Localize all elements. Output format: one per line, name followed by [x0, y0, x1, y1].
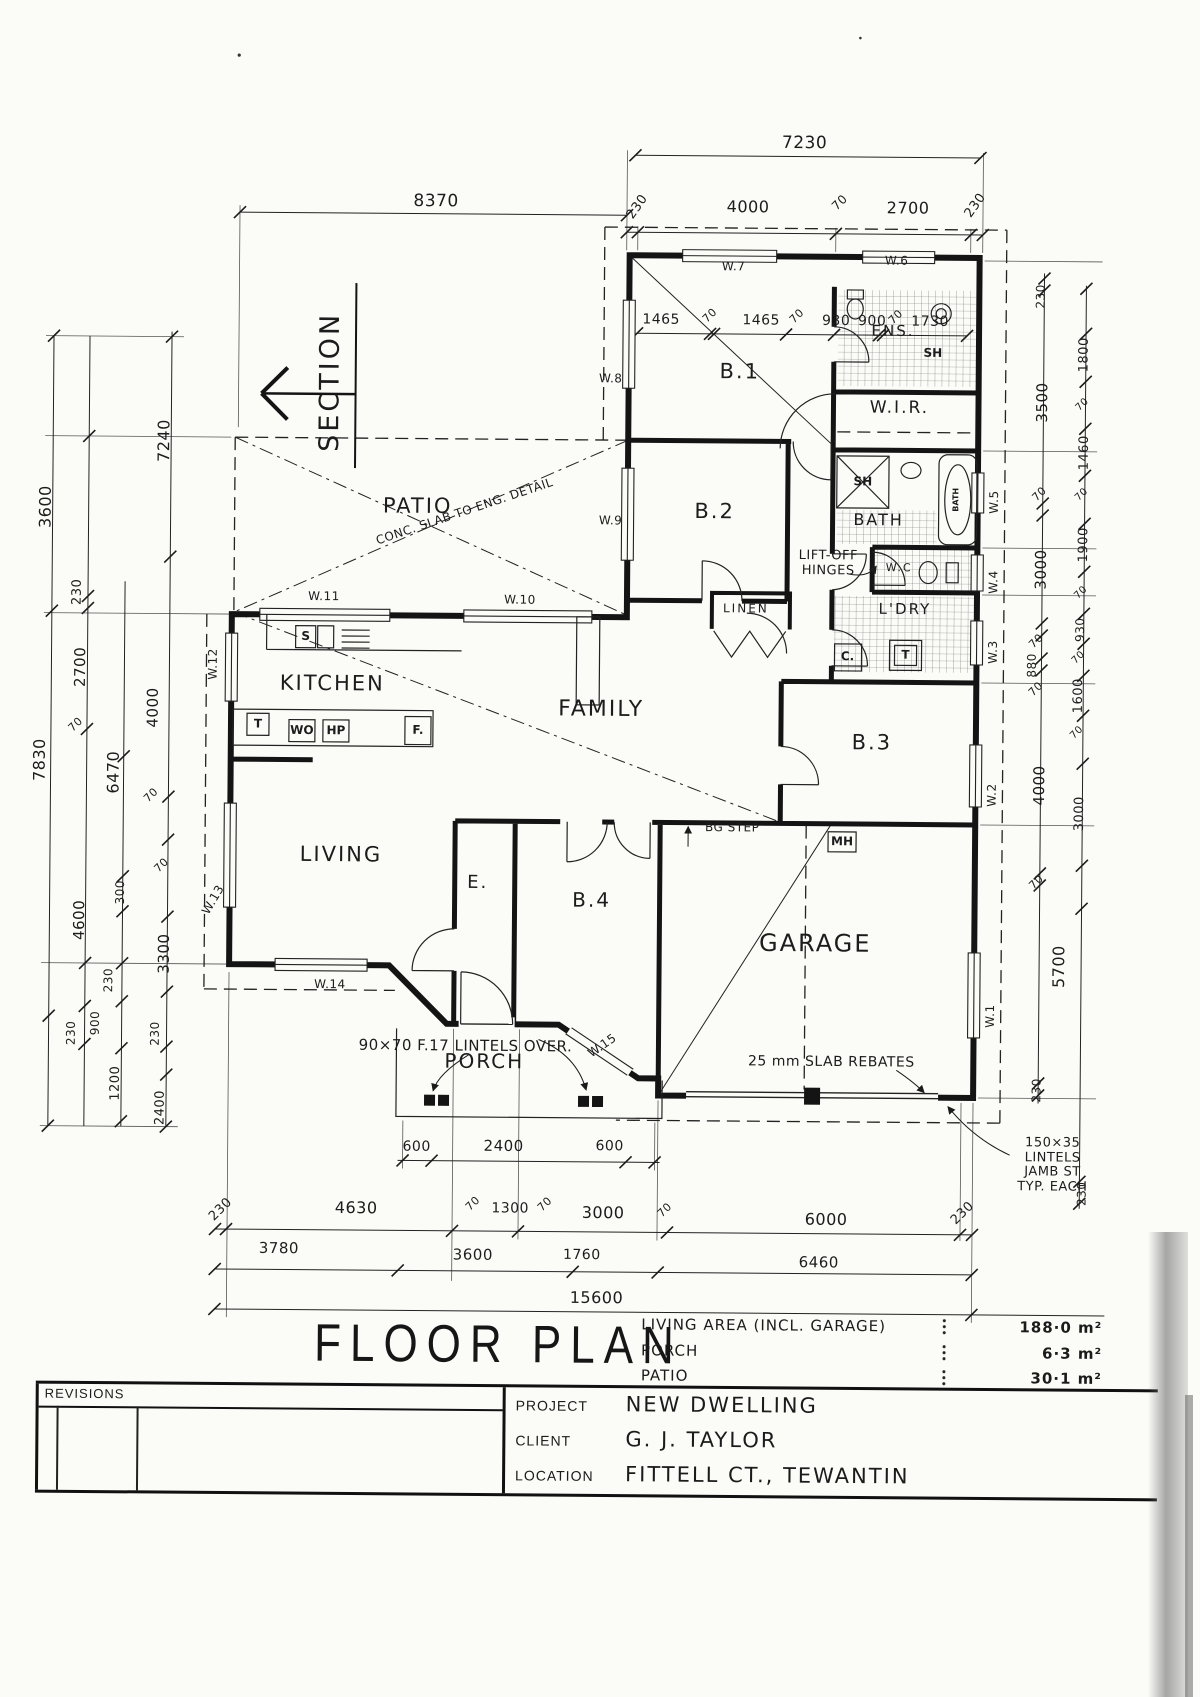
window-tag: W.11 — [308, 590, 340, 604]
fixture-label: S — [301, 630, 310, 644]
annotation-note: LIFT-OFF HINGES — [798, 549, 858, 579]
dimension-label: 1800 — [1077, 337, 1092, 372]
field-value: NEW DWELLING — [626, 1392, 818, 1418]
title-block-fields: PROJECTNEW DWELLINGCLIENTG. J. TAYLORLOC… — [505, 1387, 1158, 1498]
dimension-label: 1460 — [1078, 435, 1093, 470]
dimension-label: 70 — [142, 786, 161, 805]
dimension-label: 3000 — [1033, 549, 1050, 589]
dimension-label: 4630 — [335, 1199, 378, 1217]
window-tag: W.10 — [504, 594, 536, 608]
room-label: KITCHEN — [280, 672, 385, 696]
dimension-label: 600 — [402, 1140, 430, 1156]
dimension-label: 1730 — [911, 315, 949, 331]
dimension-label: 230 — [949, 1199, 978, 1228]
dimension-label: 2400 — [484, 1138, 524, 1155]
dotted-leader — [942, 1318, 946, 1336]
window-tag: W.4 — [987, 570, 1001, 594]
dimension-label: 900 — [858, 314, 886, 330]
dimension-label: 6470 — [104, 751, 122, 794]
dimension-label: 3500 — [1034, 382, 1051, 422]
dimension-label: 230 — [149, 1021, 163, 1046]
annotation-note: 25 mm SLAB REBATES — [748, 1054, 915, 1071]
dimension-label: 3000 — [1073, 796, 1088, 831]
dimension-label: 2700 — [72, 647, 89, 687]
scan-smudge — [1148, 1232, 1188, 1697]
dimension-label: 230 — [624, 192, 651, 222]
dimension-label: 5700 — [1050, 945, 1068, 988]
revisions-label: REVISIONS — [45, 1386, 125, 1402]
dimension-label: 70 — [1070, 649, 1088, 667]
room-label: B.4 — [572, 889, 611, 912]
dimension-label: 70 — [464, 1194, 483, 1213]
section-label: SECTION — [315, 312, 346, 452]
dimension-label: 70 — [1068, 724, 1086, 742]
window-tag: W.8 — [599, 372, 623, 386]
dimension-label: 70 — [788, 307, 807, 326]
dimension-label: 1300 — [491, 1201, 529, 1217]
dimension-label: 300 — [114, 880, 128, 905]
dimension-label: 4000 — [145, 687, 162, 727]
room-label: B.1 — [719, 360, 760, 384]
fixture-label: WO — [290, 724, 314, 738]
dimension-label: 1465 — [642, 312, 680, 328]
revisions-divider — [56, 1406, 59, 1490]
dimension-label: 6460 — [799, 1254, 839, 1271]
dimension-label: 230 — [71, 579, 86, 605]
room-label: LIVING — [300, 843, 383, 867]
area-row-label: LIVING AREA (INCL. GARAGE) — [641, 1315, 886, 1335]
window-tag: W.14 — [314, 978, 346, 992]
window-tag: W.1 — [984, 1004, 998, 1028]
dimension-label: 230 — [1030, 1078, 1044, 1103]
fixture-label: HP — [326, 724, 345, 738]
dimension-label: 1600 — [1072, 678, 1087, 713]
room-label: BATH — [853, 511, 904, 529]
field-label: CLIENT — [515, 1432, 571, 1448]
dimension-label: 70 — [656, 1201, 675, 1220]
dimension-label: 230 — [1076, 1182, 1090, 1207]
area-row-label: PORCH — [641, 1341, 698, 1359]
dimension-label: 230 — [963, 191, 990, 221]
field-label: PROJECT — [516, 1397, 588, 1414]
dimension-label: 1760 — [563, 1248, 601, 1264]
room-label: E. — [467, 873, 488, 893]
annotation-note: 90×70 F.17 LINTELS OVER. — [359, 1037, 573, 1055]
scan-smudge-edge — [1185, 1395, 1193, 1697]
fixture-label: F. — [412, 724, 423, 738]
dimension-label: 4600 — [71, 900, 88, 940]
fixture-label: SH — [854, 475, 873, 489]
dimension-label: 70 — [1027, 632, 1046, 651]
dimension-label: 70 — [66, 715, 85, 734]
window-tag: W.5 — [988, 490, 1002, 514]
room-label: W.C — [886, 562, 913, 575]
dimension-label: 7830 — [31, 738, 49, 781]
window-tag: W.13 — [200, 883, 228, 917]
room-label: B.3 — [852, 731, 893, 755]
room-label: GARAGE — [759, 930, 872, 958]
area-row-value: 188·0 m² — [1010, 1318, 1102, 1337]
dimension-label: 930 — [822, 314, 850, 330]
window-tag: W.2 — [986, 783, 1000, 807]
title-block-row: CLIENTG. J. TAYLOR — [505, 1424, 1157, 1463]
title-block-row: LOCATIONFITTELL CT., TEWANTIN — [505, 1459, 1157, 1498]
dotted-leader — [942, 1344, 946, 1362]
dimension-label: 70 — [1073, 486, 1091, 504]
revisions-rule — [39, 1406, 503, 1412]
revisions-divider — [136, 1406, 139, 1490]
dimension-label: 7230 — [782, 134, 827, 153]
dimension-label: 1900 — [1077, 527, 1092, 562]
dimension-label: 230 — [207, 1196, 236, 1225]
dimension-label: 70 — [830, 192, 851, 213]
dotted-leader — [942, 1369, 946, 1387]
dimension-label: 930 — [1074, 618, 1088, 643]
dimension-label: 70 — [152, 856, 171, 875]
dimension-label: 70 — [1027, 873, 1046, 892]
dimension-label: 600 — [595, 1139, 623, 1155]
dimension-label: 8370 — [413, 192, 458, 211]
room-label: L'DRY — [879, 601, 932, 618]
dimension-label: 2700 — [887, 199, 930, 217]
room-label: B.2 — [694, 500, 735, 524]
fixture-label: SH — [924, 347, 943, 361]
field-value: FITTELL CT., TEWANTIN — [625, 1462, 910, 1488]
scanned-floor-plan-sheet: PATIOKITCHENFAMILYLIVINGB.1B.2B.3B.4GARA… — [0, 0, 1200, 1697]
drawing-area: PATIOKITCHENFAMILYLIVINGB.1B.2B.3B.4GARA… — [0, 0, 1200, 1697]
dimension-label: 4000 — [1031, 765, 1048, 805]
dimension-label: 900 — [89, 1011, 103, 1036]
window-tag: W.3 — [987, 640, 1001, 664]
dimension-label: 7240 — [155, 419, 173, 462]
revisions-box: REVISIONS — [35, 1384, 506, 1494]
dimension-label: 3600 — [453, 1246, 493, 1263]
dimension-label: 70 — [701, 306, 720, 325]
area-row-value: 6·3 m² — [1010, 1344, 1102, 1363]
dimension-label: 1465 — [742, 313, 780, 329]
dimension-label: 70 — [1072, 584, 1090, 602]
title-block: REVISIONS PROJECTNEW DWELLINGCLIENTG. J.… — [35, 1381, 1158, 1502]
window-tag: W.12 — [207, 648, 221, 680]
window-tag: W.6 — [885, 255, 909, 269]
fixture-label: BATH — [952, 488, 961, 512]
annotation-note: BG STEP — [705, 821, 760, 835]
dimension-label: 3300 — [156, 933, 173, 973]
room-label: W.I.R. — [870, 399, 929, 418]
dimension-label: 15600 — [570, 1289, 624, 1307]
fixture-label: T — [901, 649, 909, 663]
room-label: LINEN — [723, 602, 769, 616]
sheet-title: FLOOR PLAN — [314, 1314, 590, 1376]
fixture-label: MH — [831, 835, 853, 849]
dimension-label: 230 — [102, 968, 116, 993]
area-row-label: PATIO — [641, 1366, 689, 1384]
dimension-label: 880 — [1026, 653, 1040, 678]
dimension-label: 70 — [1074, 396, 1092, 414]
dimension-label: 70 — [536, 1195, 555, 1214]
fixture-label: T — [254, 718, 262, 732]
dimension-label: 4000 — [727, 198, 770, 216]
field-value: G. J. TAYLOR — [625, 1427, 777, 1452]
dimension-label: 230 — [1035, 284, 1049, 309]
title-block-row: PROJECTNEW DWELLING — [505, 1389, 1157, 1428]
window-tag: W.7 — [722, 260, 746, 274]
dimension-label: 2400 — [154, 1090, 169, 1125]
dimension-label: 3600 — [37, 485, 55, 528]
fixture-label: C. — [841, 650, 854, 664]
dimension-label: 70 — [1030, 485, 1049, 504]
dimension-label: 3000 — [582, 1204, 625, 1222]
dimension-label: 70 — [1027, 680, 1046, 699]
dimension-label: 3780 — [259, 1240, 299, 1257]
window-tag: W.15 — [586, 1032, 620, 1061]
dimension-label: 230 — [65, 1021, 79, 1046]
window-tag: W.9 — [599, 514, 623, 528]
dimension-label: 6000 — [805, 1211, 848, 1229]
field-label: LOCATION — [515, 1467, 594, 1484]
area-row-value: 30·1 m² — [1010, 1369, 1102, 1388]
dimension-label: 1200 — [109, 1066, 124, 1101]
room-label: FAMILY — [558, 697, 644, 722]
